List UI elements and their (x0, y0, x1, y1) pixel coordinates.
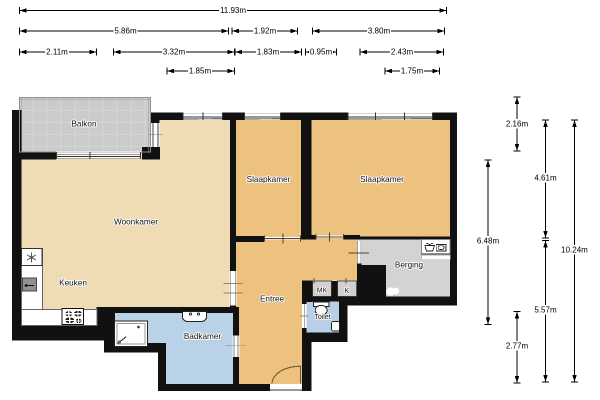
svg-text:MK: MK (317, 288, 328, 295)
svg-text:Slaapkamer: Slaapkamer (360, 175, 404, 184)
svg-text:6.48m: 6.48m (477, 237, 500, 246)
svg-text:1.75m: 1.75m (401, 67, 424, 76)
svg-text:5.86m: 5.86m (114, 27, 137, 36)
svg-text:11.93m: 11.93m (220, 6, 246, 15)
svg-text:0.95m: 0.95m (310, 48, 333, 57)
svg-text:10.24m: 10.24m (561, 246, 588, 255)
svg-text:K: K (344, 288, 349, 295)
svg-text:Keuken: Keuken (59, 279, 87, 288)
svg-text:Balkon: Balkon (71, 120, 96, 129)
svg-text:2.16m: 2.16m (506, 120, 529, 129)
svg-text:Entree: Entree (260, 295, 285, 304)
svg-text:1.85m: 1.85m (189, 67, 212, 76)
svg-text:Berging: Berging (395, 261, 424, 270)
svg-text:5.57m: 5.57m (534, 306, 557, 315)
svg-text:4.61m: 4.61m (534, 174, 557, 183)
svg-text:Slaapkamer: Slaapkamer (247, 175, 291, 184)
svg-text:Badkamer: Badkamer (184, 332, 222, 341)
svg-text:2.43m: 2.43m (391, 48, 414, 57)
svg-text:2.77m: 2.77m (506, 342, 529, 351)
svg-text:3.32m: 3.32m (163, 48, 186, 57)
svg-text:2.11m: 2.11m (46, 48, 68, 57)
svg-text:3.80m: 3.80m (368, 27, 391, 36)
svg-text:Woonkamer: Woonkamer (114, 218, 158, 227)
svg-text:Toilet: Toilet (314, 314, 330, 321)
svg-text:1.83m: 1.83m (257, 48, 280, 57)
svg-text:1.92m: 1.92m (254, 27, 277, 36)
